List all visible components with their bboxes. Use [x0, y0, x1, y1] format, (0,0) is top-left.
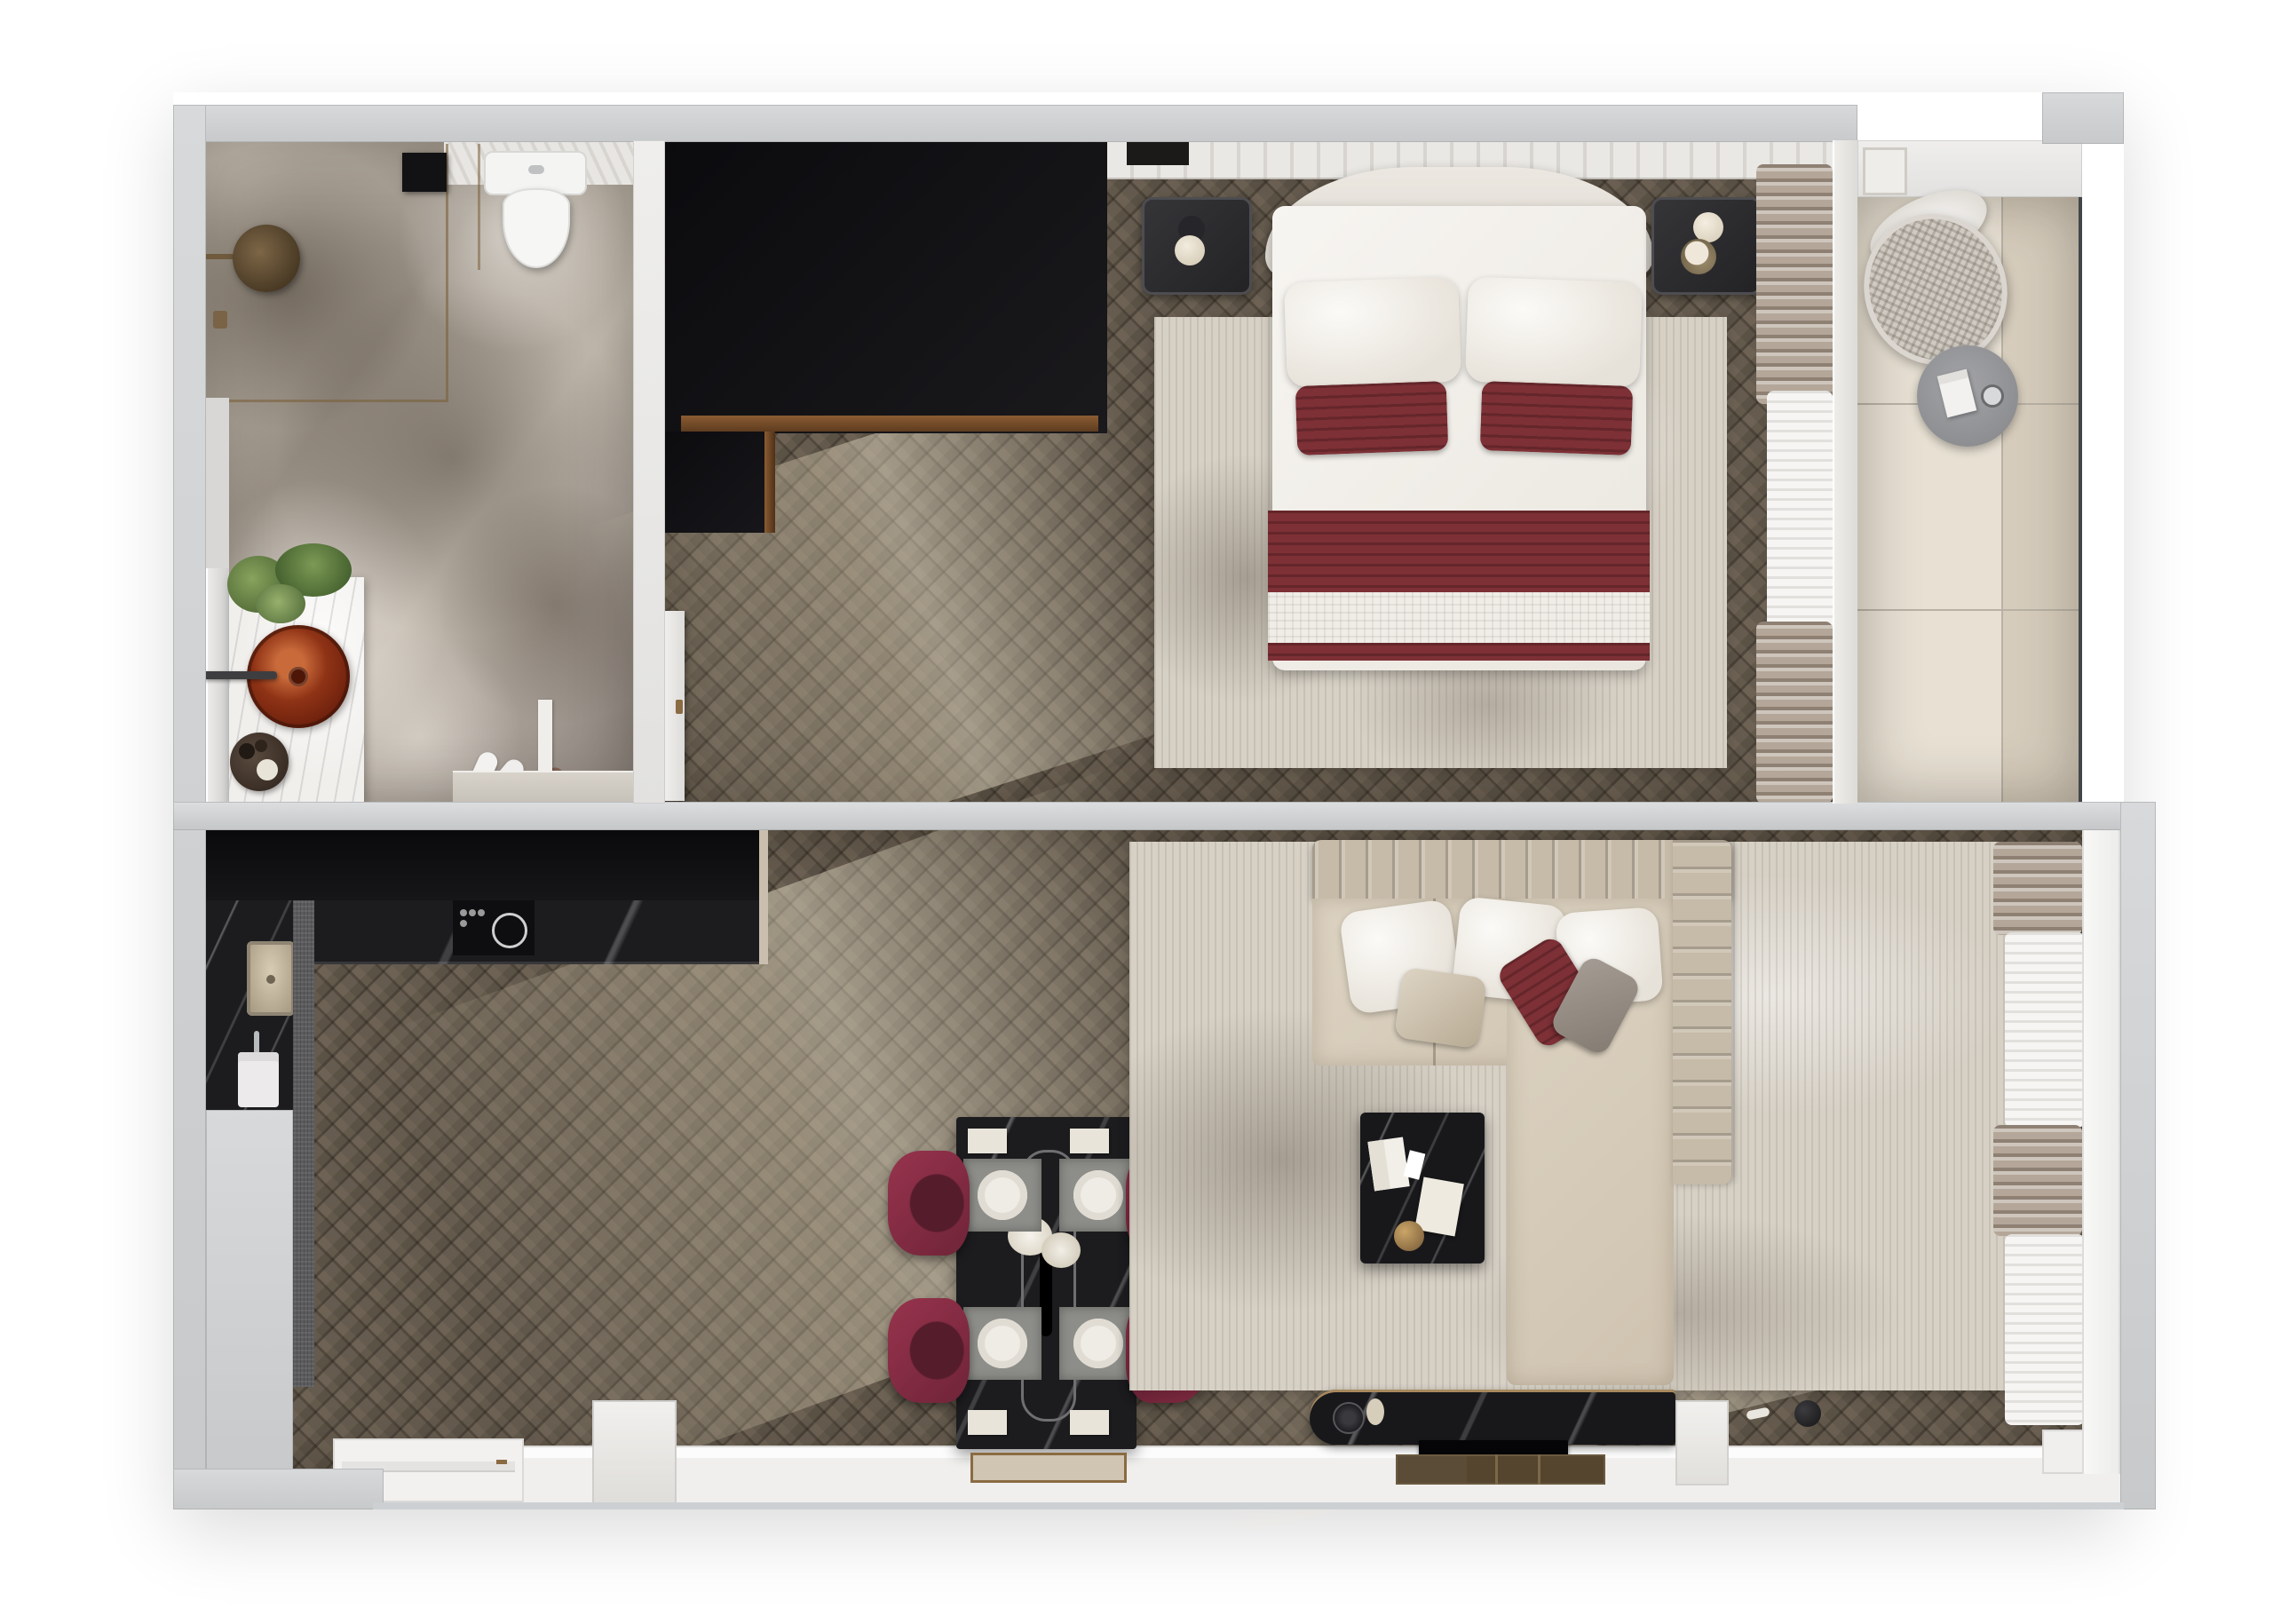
magazine — [1937, 369, 1977, 418]
top-right-wall-stub — [2042, 92, 2124, 144]
tv-console — [1310, 1390, 1675, 1445]
white-pillow-left — [1284, 277, 1461, 388]
placemat-1 — [963, 1159, 1041, 1232]
floorplan-stage — [0, 0, 2273, 1624]
living-drape-top — [1993, 842, 2082, 935]
cabinet-side-panel — [293, 900, 314, 1387]
placemat-3 — [963, 1307, 1041, 1380]
burgundy-throw — [1268, 511, 1650, 592]
bedroom-drape-top — [1756, 164, 1833, 404]
wardrobe-side-leg — [665, 432, 766, 533]
living-drape-mid — [1993, 1125, 2082, 1236]
divider-wall — [173, 802, 2124, 830]
mat-slat-2 — [1538, 1454, 1540, 1485]
bathroom — [206, 140, 633, 804]
burgundy-hem — [1268, 643, 1650, 661]
cup — [1981, 384, 2004, 408]
knob-1 — [460, 909, 467, 916]
balcony — [1857, 140, 2082, 802]
bathroom-left-wall-band — [206, 398, 229, 568]
nightstand-right-decor — [1681, 239, 1716, 274]
sink-drain — [266, 975, 275, 984]
centerpiece-flowers-2 — [1041, 1232, 1081, 1268]
sink-drain — [289, 667, 308, 686]
bedroom-door-handle — [676, 700, 683, 714]
knob-3 — [478, 909, 485, 916]
balcony-top-wall — [1857, 140, 2082, 197]
nightstand-right-lamp — [1693, 212, 1723, 242]
napkin-4 — [1070, 1410, 1109, 1435]
bottom-outer-edge — [373, 1502, 2124, 1509]
accessory-tray — [230, 733, 289, 791]
console-sculpture — [1794, 1400, 1821, 1427]
glass-railing — [2079, 197, 2082, 802]
right-window-band — [2082, 830, 2120, 1474]
wardrobe — [665, 140, 1107, 433]
dining-chair-2 — [888, 1298, 970, 1403]
sofa-right-arm — [1673, 840, 1731, 1184]
napkin-1 — [968, 1129, 1007, 1153]
living-sheer-1 — [2005, 932, 2085, 1128]
console-plate — [1746, 1406, 1770, 1420]
shower-control — [213, 311, 227, 329]
bedroom — [665, 140, 1833, 804]
appliance-front — [238, 1052, 279, 1107]
balcony-side-table — [1917, 345, 2018, 447]
tray-jar-2 — [255, 740, 267, 752]
tray-jar-1 — [239, 743, 255, 759]
napkin-3 — [968, 1410, 1007, 1435]
kitchen-cabinet-run — [206, 830, 768, 900]
right-wall — [2120, 802, 2156, 1509]
lower-level — [206, 830, 2120, 1474]
coffee-table — [1360, 1113, 1485, 1264]
bottom-left-wall — [173, 1469, 384, 1509]
tv-wood-mat — [1396, 1454, 1605, 1485]
nightstand-left — [1142, 197, 1252, 295]
mat-slat-1 — [1495, 1454, 1498, 1485]
plate-1 — [978, 1170, 1027, 1220]
console-vase — [1366, 1398, 1384, 1425]
bathroom-threshold — [453, 771, 633, 804]
nightstand-left-lamp — [1175, 235, 1205, 265]
plate-4 — [1073, 1319, 1123, 1368]
balcony-window-frame — [1833, 140, 1857, 804]
kitchen-corner-wall — [206, 1110, 293, 1474]
wardrobe-bronze-trim — [681, 416, 1098, 432]
waffle-blanket — [1268, 592, 1650, 646]
balcony-door-frame — [1863, 147, 1907, 195]
knob-2 — [469, 909, 476, 916]
window-sill-block — [1675, 1400, 1729, 1485]
coffee-table-card — [1404, 1150, 1426, 1179]
gold-sculpture — [1394, 1221, 1424, 1251]
toilet-bowl — [503, 188, 570, 268]
top-wall — [173, 105, 1857, 142]
burgundy-pillow-left — [1295, 381, 1449, 456]
plate-3 — [978, 1319, 1027, 1368]
cooktop-ring — [492, 913, 527, 948]
sofa-taupe-pillow — [1394, 967, 1487, 1049]
shower-niche — [402, 153, 447, 192]
kitchen-sink — [247, 941, 295, 1016]
mirror-light-strip — [206, 568, 229, 804]
cooktop-panel — [453, 900, 535, 955]
bedroom-drape-bottom — [1756, 622, 1833, 804]
entry-door-handle — [496, 1460, 507, 1464]
toilet-flush-button — [528, 165, 544, 174]
burgundy-pillow-right — [1480, 381, 1634, 456]
wardrobe-trim-edge — [764, 432, 775, 533]
white-pillow-right — [1465, 277, 1643, 388]
console-speaker — [1333, 1402, 1365, 1434]
living-sheer-2 — [2005, 1234, 2085, 1425]
nightstand-right — [1651, 197, 1762, 295]
plate-2 — [1073, 1170, 1123, 1220]
dining-chair-1 — [888, 1151, 970, 1256]
dining-door-mat — [970, 1453, 1127, 1483]
napkin-2 — [1070, 1129, 1109, 1153]
knob-4 — [460, 920, 467, 927]
balcony-tile-column — [2003, 197, 2082, 802]
plant-leaf-3 — [256, 584, 305, 623]
wall-sconce-shadow — [1127, 142, 1189, 165]
tray-candle — [257, 759, 278, 780]
tile-grout-2 — [1857, 609, 2082, 611]
counter-end-panel — [759, 830, 768, 964]
rain-shower-head — [233, 225, 300, 292]
sofa-back — [1312, 840, 1731, 899]
dining-table — [956, 1117, 1136, 1449]
bathroom-bedroom-partition — [633, 140, 665, 804]
bedroom-sheer — [1767, 391, 1833, 639]
shower-glass-partition — [478, 144, 480, 270]
window-pier — [592, 1400, 677, 1505]
coffee-table-book — [1367, 1137, 1409, 1191]
